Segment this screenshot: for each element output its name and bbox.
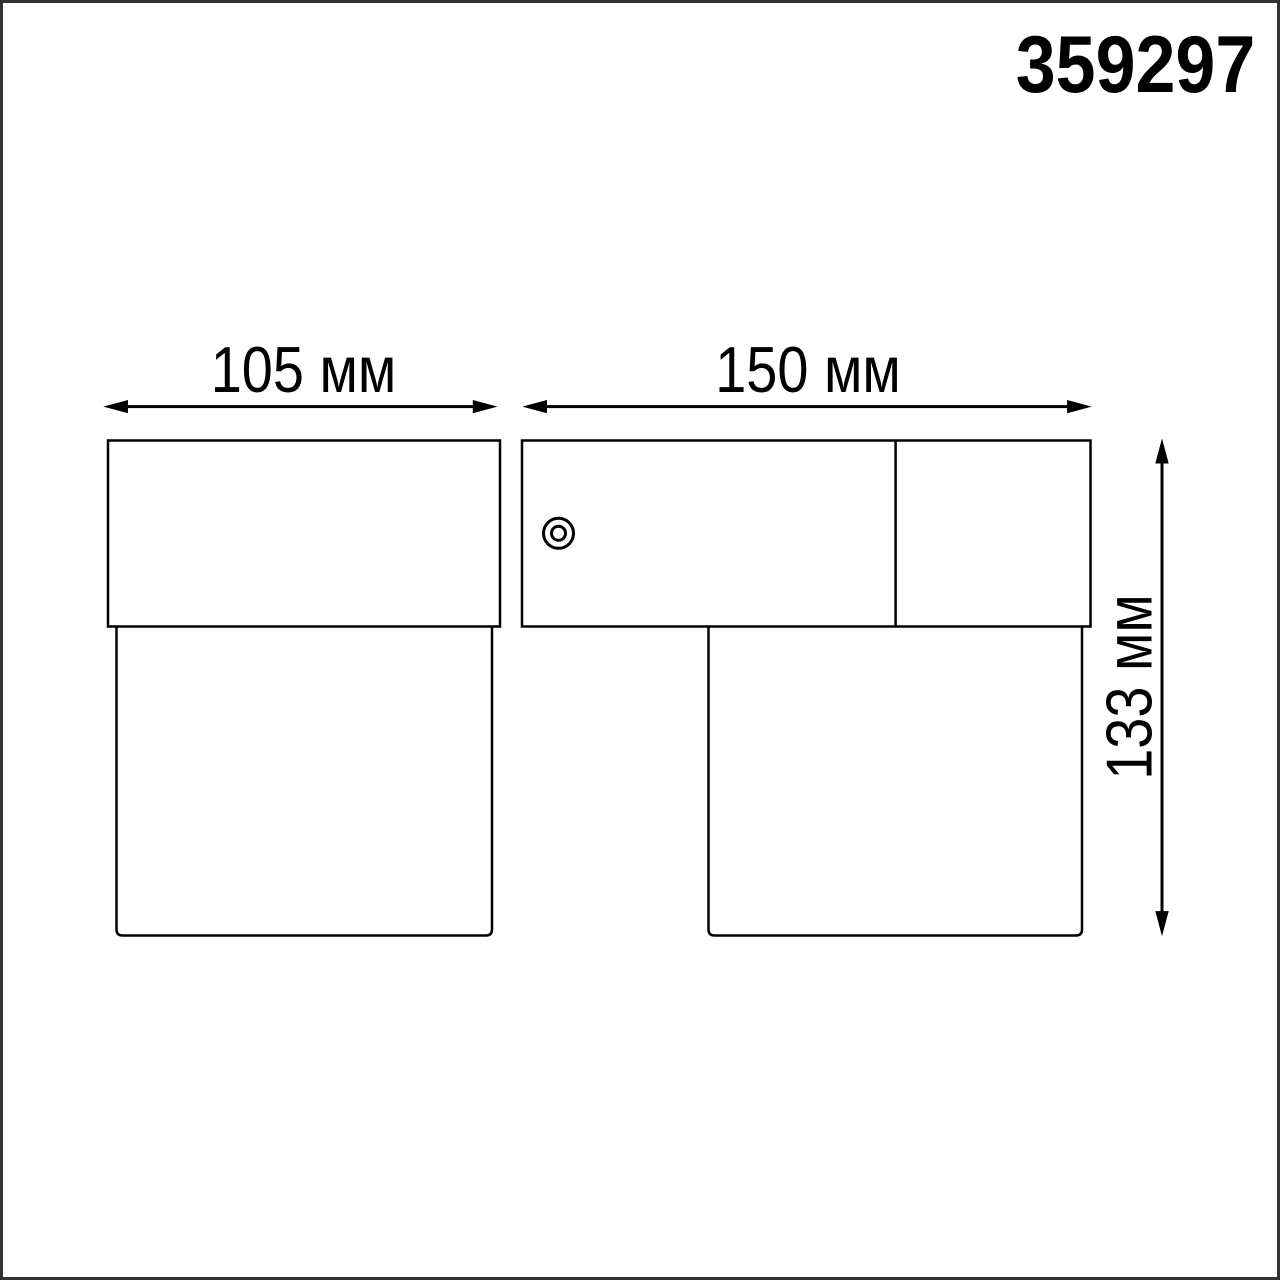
svg-text:133 мм: 133 мм bbox=[1094, 594, 1166, 780]
svg-text:359297: 359297 bbox=[1016, 20, 1256, 110]
svg-text:105 мм: 105 мм bbox=[211, 334, 397, 406]
svg-text:150 мм: 150 мм bbox=[715, 334, 901, 406]
